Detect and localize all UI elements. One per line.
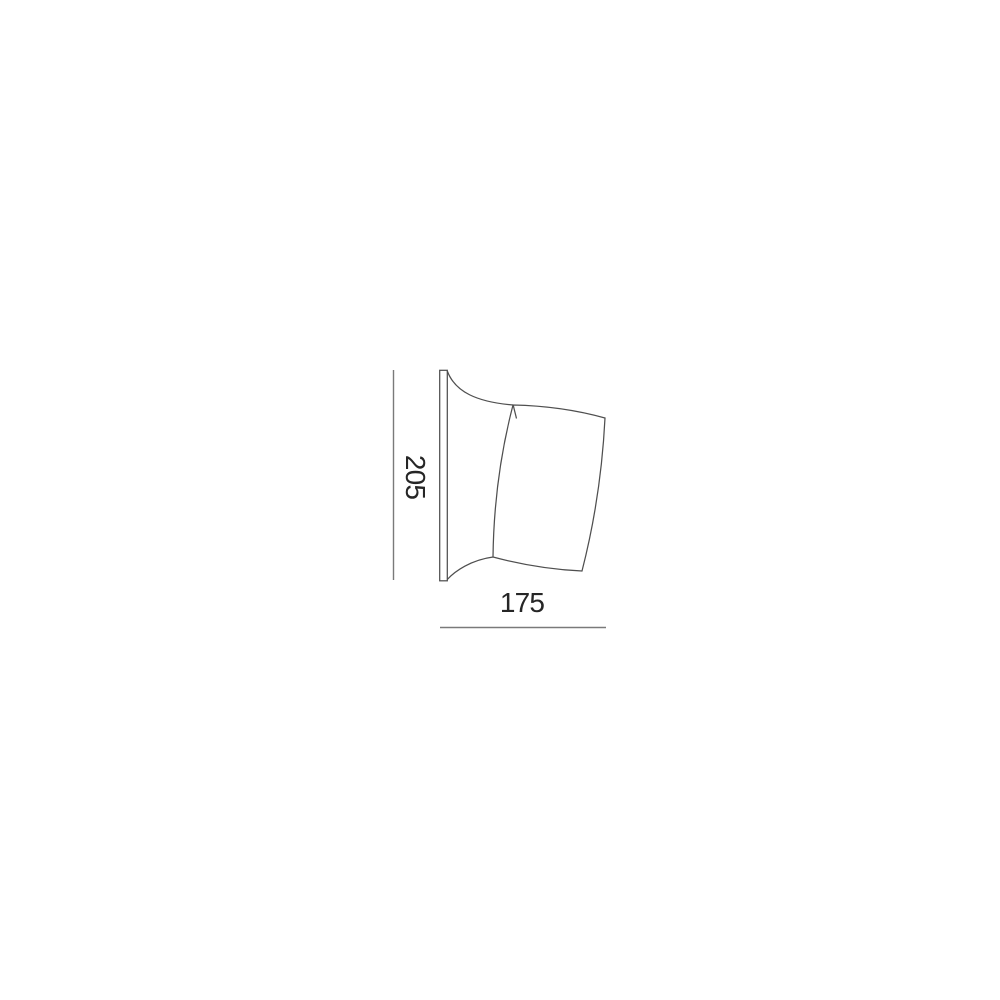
wall-mount-plate xyxy=(440,370,448,581)
lamp-outline xyxy=(440,370,605,581)
lamp-side-view-drawing: 205 175 xyxy=(0,0,1000,1000)
width-dimension-annotation: 175 xyxy=(440,587,606,628)
flare-head-notch xyxy=(513,405,516,418)
height-dimension-annotation: 205 xyxy=(394,370,432,580)
width-dimension-label: 175 xyxy=(500,587,545,618)
technical-drawing-page: 205 175 xyxy=(0,0,1000,1000)
lower-flare-curve xyxy=(447,557,493,580)
upper-flare-curve xyxy=(447,371,513,405)
diffuser-head-outline xyxy=(493,405,605,571)
height-dimension-label: 205 xyxy=(400,455,431,500)
